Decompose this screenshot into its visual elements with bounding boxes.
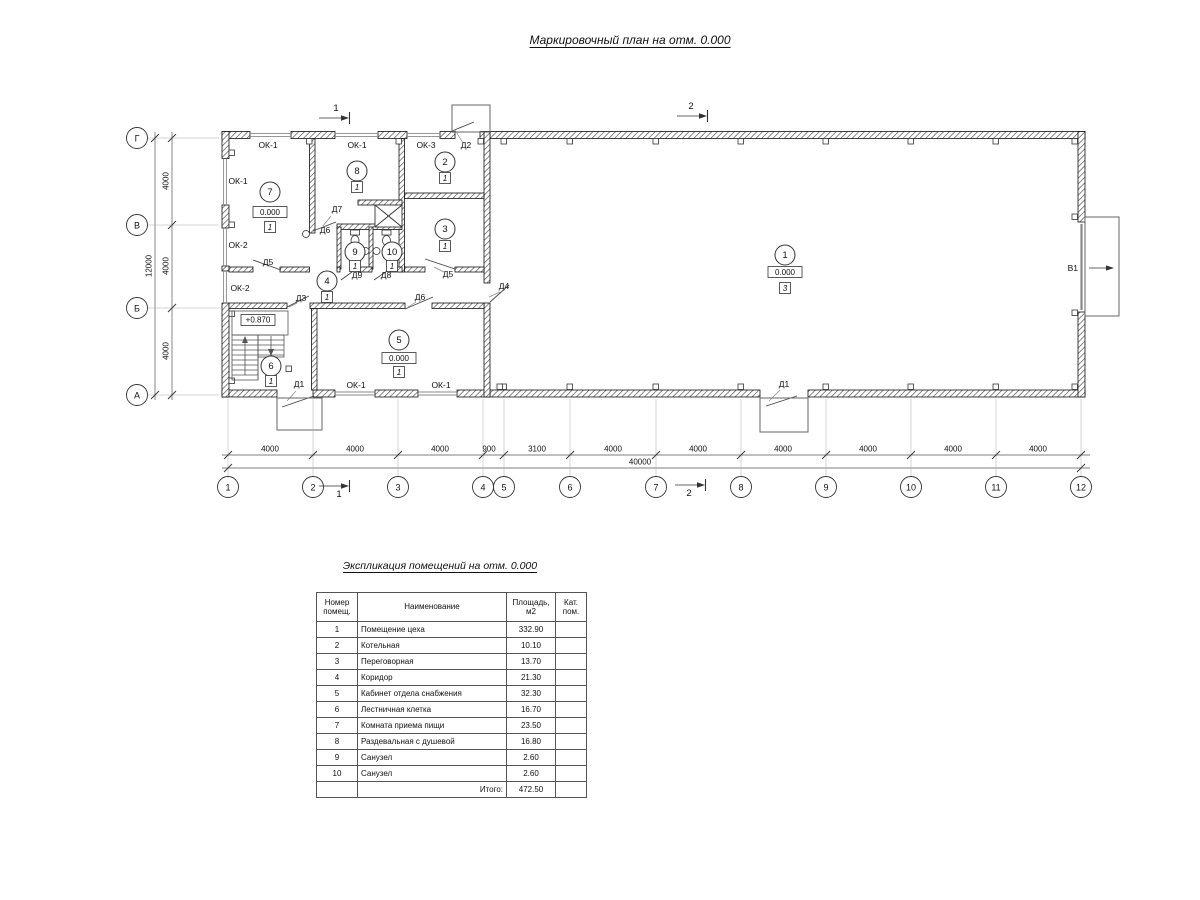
empty-cell (556, 782, 587, 798)
room-name-cell: Санузел (358, 750, 507, 766)
schedule-row: 6Лестничная клетка16.70 (317, 702, 587, 718)
schedule-row: 2Котельная10.10 (317, 638, 587, 654)
gate-platform (1085, 217, 1119, 316)
room-number: 1 (782, 250, 787, 261)
schedule-row: 4Коридор21.30 (317, 670, 587, 686)
room-number-cell: 9 (317, 750, 358, 766)
opening-mark: Д5 (263, 257, 274, 267)
room-number-cell: 2 (317, 638, 358, 654)
room-number-cell: 4 (317, 670, 358, 686)
pilaster (1072, 384, 1078, 390)
wall (229, 267, 253, 272)
leader-line (769, 390, 780, 401)
wall (280, 267, 310, 272)
room-number: 3 (442, 224, 447, 235)
room-schedule-table: Номер помещ.НаименованиеПлощадь, м2Кат. … (316, 592, 587, 798)
room-category: 3 (783, 284, 788, 293)
total-value: 472.50 (507, 782, 556, 798)
room-marker: 10.0003 (768, 245, 802, 294)
wall (313, 390, 335, 397)
wall (405, 267, 426, 272)
pilaster (497, 384, 503, 390)
wall (222, 132, 229, 159)
room-name-cell: Раздевальная с душевой (358, 734, 507, 750)
pilaster (567, 139, 573, 145)
axis-label: В (134, 221, 140, 231)
room-number-cell: 3 (317, 654, 358, 670)
room-category: 1 (443, 174, 447, 183)
sink-icon (303, 231, 310, 238)
pilaster (993, 384, 999, 390)
wall (484, 303, 490, 397)
room-category: 1 (355, 183, 359, 192)
room-name-cell: Комната приема пищи (358, 718, 507, 734)
schedule-header: Кат. пом. (556, 593, 587, 622)
room-category-cell (556, 734, 587, 750)
room-name-cell: Помещение цеха (358, 622, 507, 638)
wall (1078, 132, 1085, 223)
room-number: 2 (442, 157, 447, 168)
room-category-cell (556, 766, 587, 782)
stair-up-arrow-icon (242, 336, 248, 343)
room-number: 10 (387, 247, 398, 258)
schedule-row: 1Помещение цеха332.90 (317, 622, 587, 638)
wall (310, 303, 405, 309)
room-category: 1 (269, 377, 273, 386)
wall (808, 390, 1085, 397)
dimension-total: 40000 (629, 458, 652, 467)
opening-mark: Д6 (320, 225, 331, 235)
section-mark: 1 (319, 480, 350, 500)
room-number: 7 (267, 187, 272, 198)
room-category: 1 (397, 368, 401, 377)
room-markers: 10.000321314150.00016170.00018191101+0.8… (241, 152, 802, 387)
empty-cell (317, 782, 358, 798)
pilaster (567, 384, 573, 390)
floor-plan-svg: 4000400040009003100400040004000400040004… (0, 0, 1200, 545)
section-arrow-icon (699, 113, 707, 119)
schedule-header: Наименование (358, 593, 507, 622)
room-category-cell (556, 638, 587, 654)
axis-label: 12 (1076, 483, 1086, 493)
room-name-cell: Котельная (358, 638, 507, 654)
door-leaf (425, 259, 455, 269)
dimension-value: 4000 (774, 445, 792, 454)
axis-label: 2 (310, 483, 315, 493)
leader-line (287, 391, 296, 401)
room-category-cell (556, 718, 587, 734)
room-number: 9 (352, 247, 357, 258)
room-area-cell: 32.30 (507, 686, 556, 702)
opening-mark: Д3 (296, 293, 307, 303)
opening-mark: Д1 (779, 379, 790, 389)
room-marker: 31 (435, 219, 455, 252)
section-marks: 1212 (319, 101, 708, 500)
dimension-value: 4000 (162, 172, 171, 190)
section-number: 1 (336, 489, 341, 500)
wall (378, 132, 407, 139)
dimension-value: 4000 (162, 342, 171, 360)
dimension-ticks (151, 134, 1085, 472)
schedule-row: 3Переговорная13.70 (317, 654, 587, 670)
opening-mark: ОК-1 (346, 380, 365, 390)
axis-label: 7 (653, 483, 658, 493)
room-area-cell: 332.90 (507, 622, 556, 638)
schedule-title: Экспликация помещений на отм. 0.000 (290, 560, 590, 572)
room-category-cell (556, 750, 587, 766)
section-number: 2 (688, 101, 693, 112)
room-number-cell: 1 (317, 622, 358, 638)
dimension-total: 12000 (145, 254, 154, 277)
room-name-cell: Переговорная (358, 654, 507, 670)
gate-label: В1 (1068, 263, 1079, 273)
wall (375, 390, 418, 397)
wall (440, 132, 455, 139)
dimension-value: 4000 (689, 445, 707, 454)
axis-label: 6 (567, 483, 572, 493)
opening-mark: ОК-1 (347, 140, 366, 150)
room-number: 8 (354, 166, 359, 177)
section-arrow-icon (341, 483, 349, 489)
room-number: 6 (268, 361, 273, 372)
wall (229, 303, 287, 309)
wall (369, 227, 373, 269)
room-category-cell (556, 686, 587, 702)
room-number-cell: 8 (317, 734, 358, 750)
sink-icon (373, 248, 380, 255)
wall (405, 193, 485, 199)
room-area-cell: 21.30 (507, 670, 556, 686)
room-category: 1 (390, 262, 394, 271)
pilaster (738, 139, 744, 145)
wall (490, 390, 760, 397)
dimension-value: 4000 (1029, 445, 1047, 454)
room-name-cell: Кабинет отдела снабжения (358, 686, 507, 702)
wall (222, 266, 229, 271)
dimension-value: 4000 (944, 445, 962, 454)
wall (337, 227, 341, 269)
wall (310, 139, 316, 234)
room-elevation: 0.000 (389, 354, 410, 363)
extension-lines (148, 138, 1081, 477)
room-category-cell (556, 654, 587, 670)
opening-mark: ОК-2 (228, 240, 247, 250)
pilaster (653, 384, 659, 390)
axis-label: 1 (225, 483, 230, 493)
opening-mark: Д5 (443, 269, 454, 279)
entry-porch-left (277, 398, 322, 430)
dimension-value: 4000 (604, 445, 622, 454)
room-category: 1 (268, 223, 272, 232)
room-marker: 70.0001 (253, 182, 287, 233)
opening-mark: Д2 (461, 140, 472, 150)
wall (222, 390, 277, 397)
room-marker: 41 (317, 271, 337, 303)
wall (291, 132, 335, 139)
dimension-value: 4000 (162, 257, 171, 275)
room-number-cell: 10 (317, 766, 358, 782)
room-name-cell: Коридор (358, 670, 507, 686)
wall (455, 267, 484, 272)
room-area-cell: 16.70 (507, 702, 556, 718)
schedule-row: 5Кабинет отдела снабжения32.30 (317, 686, 587, 702)
schedule-row: 9Санузел2.60 (317, 750, 587, 766)
opening-mark: Д7 (332, 204, 343, 214)
schedule-row: 7Комната приема пищи23.50 (317, 718, 587, 734)
axis-label: 10 (906, 483, 916, 493)
opening-mark: Д1 (294, 379, 305, 389)
room-area-cell: 10.10 (507, 638, 556, 654)
pilaster (653, 139, 659, 145)
room-name-cell: Санузел (358, 766, 507, 782)
room-area-cell: 13.70 (507, 654, 556, 670)
axis-label: 8 (738, 483, 743, 493)
wall (484, 132, 490, 284)
dimension-value: 4000 (261, 445, 279, 454)
pilaster (229, 222, 235, 228)
room-area-cell: 2.60 (507, 750, 556, 766)
room-name-cell: Лестничная клетка (358, 702, 507, 718)
room-category: 1 (325, 293, 329, 302)
wall (432, 303, 484, 309)
schedule-row: 10Санузел2.60 (317, 766, 587, 782)
section-mark: 1 (319, 103, 350, 124)
shower-tray-icon (375, 205, 402, 227)
pilaster (823, 384, 829, 390)
room-number-cell: 7 (317, 718, 358, 734)
schedule-header: Номер помещ. (317, 593, 358, 622)
room-category-cell (556, 702, 587, 718)
room-area-cell: 2.60 (507, 766, 556, 782)
room-marker: 81 (347, 161, 367, 193)
pilaster (1072, 214, 1078, 220)
room-elevation: 0.000 (775, 268, 796, 277)
axis-label: 3 (395, 483, 400, 493)
room-marker: 21 (435, 152, 455, 184)
pilaster (908, 384, 914, 390)
section-mark: 2 (675, 479, 706, 499)
room-category-cell (556, 622, 587, 638)
pilaster (1072, 139, 1078, 145)
pilaster (229, 150, 235, 156)
axis-label: Г (135, 134, 140, 144)
section-mark: 2 (677, 101, 708, 122)
room-marker: 61 (261, 356, 281, 387)
section-arrow-icon (697, 482, 705, 488)
gate-v1 (1082, 224, 1115, 310)
opening-mark: ОК-2 (230, 283, 249, 293)
section-number: 1 (333, 103, 338, 114)
opening-mark: ОК-1 (258, 140, 277, 150)
room-category-cell (556, 670, 587, 686)
pilaster (286, 366, 292, 372)
room-category: 1 (443, 242, 447, 251)
pilaster (823, 139, 829, 145)
opening-mark: ОК-3 (416, 140, 435, 150)
axis-label: 5 (501, 483, 506, 493)
room-number-cell: 5 (317, 686, 358, 702)
room-marker: 50.0001 (382, 330, 416, 378)
room-elevation: 0.000 (260, 208, 281, 217)
pilaster (993, 139, 999, 145)
door-swings (253, 122, 797, 407)
room-number: 5 (396, 335, 401, 346)
room-category: 1 (353, 262, 357, 271)
wall (222, 303, 229, 397)
wall (312, 309, 318, 391)
section-number: 2 (686, 488, 691, 499)
room-number: 4 (324, 276, 329, 287)
room-number-cell: 6 (317, 702, 358, 718)
axis-label: 11 (991, 483, 1000, 493)
axis-label: 9 (823, 483, 828, 493)
dimension-value: 4000 (859, 445, 877, 454)
total-label: Итого: (358, 782, 507, 798)
gate-direction-arrow-icon (1106, 265, 1114, 270)
opening-mark: ОК-1 (431, 380, 450, 390)
room-area-cell: 16.80 (507, 734, 556, 750)
pilaster (1072, 310, 1078, 316)
pilaster (478, 139, 484, 145)
wall (490, 132, 1085, 139)
dimension-value: 4000 (431, 445, 449, 454)
stair-elevation: +0.870 (246, 316, 271, 325)
schedule-header: Площадь, м2 (507, 593, 556, 622)
opening-mark: Д6 (415, 292, 426, 302)
dimension-value: 4000 (346, 445, 364, 454)
pilaster (908, 139, 914, 145)
wall (337, 267, 340, 272)
pilaster (738, 384, 744, 390)
opening-mark: Д4 (499, 281, 510, 291)
entry-porch-top (452, 105, 490, 132)
section-arrow-icon (341, 115, 349, 121)
room-area-cell: 23.50 (507, 718, 556, 734)
axis-label: А (134, 391, 140, 401)
axis-label: Б (134, 304, 140, 314)
axis-label: 4 (480, 483, 485, 493)
door-leaf (452, 122, 474, 131)
wall (358, 200, 402, 205)
entry-porch-right (760, 398, 808, 432)
drawing-sheet: { "drawing": { "title": "Маркировочный п… (0, 0, 1200, 900)
wall (1078, 312, 1085, 397)
wall (222, 205, 229, 228)
schedule-total-row: Итого:472.50 (317, 782, 587, 798)
pilaster (307, 139, 313, 145)
dimension-value: 3100 (528, 445, 546, 454)
dimension-value: 900 (482, 445, 496, 454)
schedule-row: 8Раздевальная с душевой16.80 (317, 734, 587, 750)
pilaster (501, 139, 507, 145)
pilaster (396, 139, 402, 145)
opening-mark: ОК-1 (228, 176, 247, 186)
